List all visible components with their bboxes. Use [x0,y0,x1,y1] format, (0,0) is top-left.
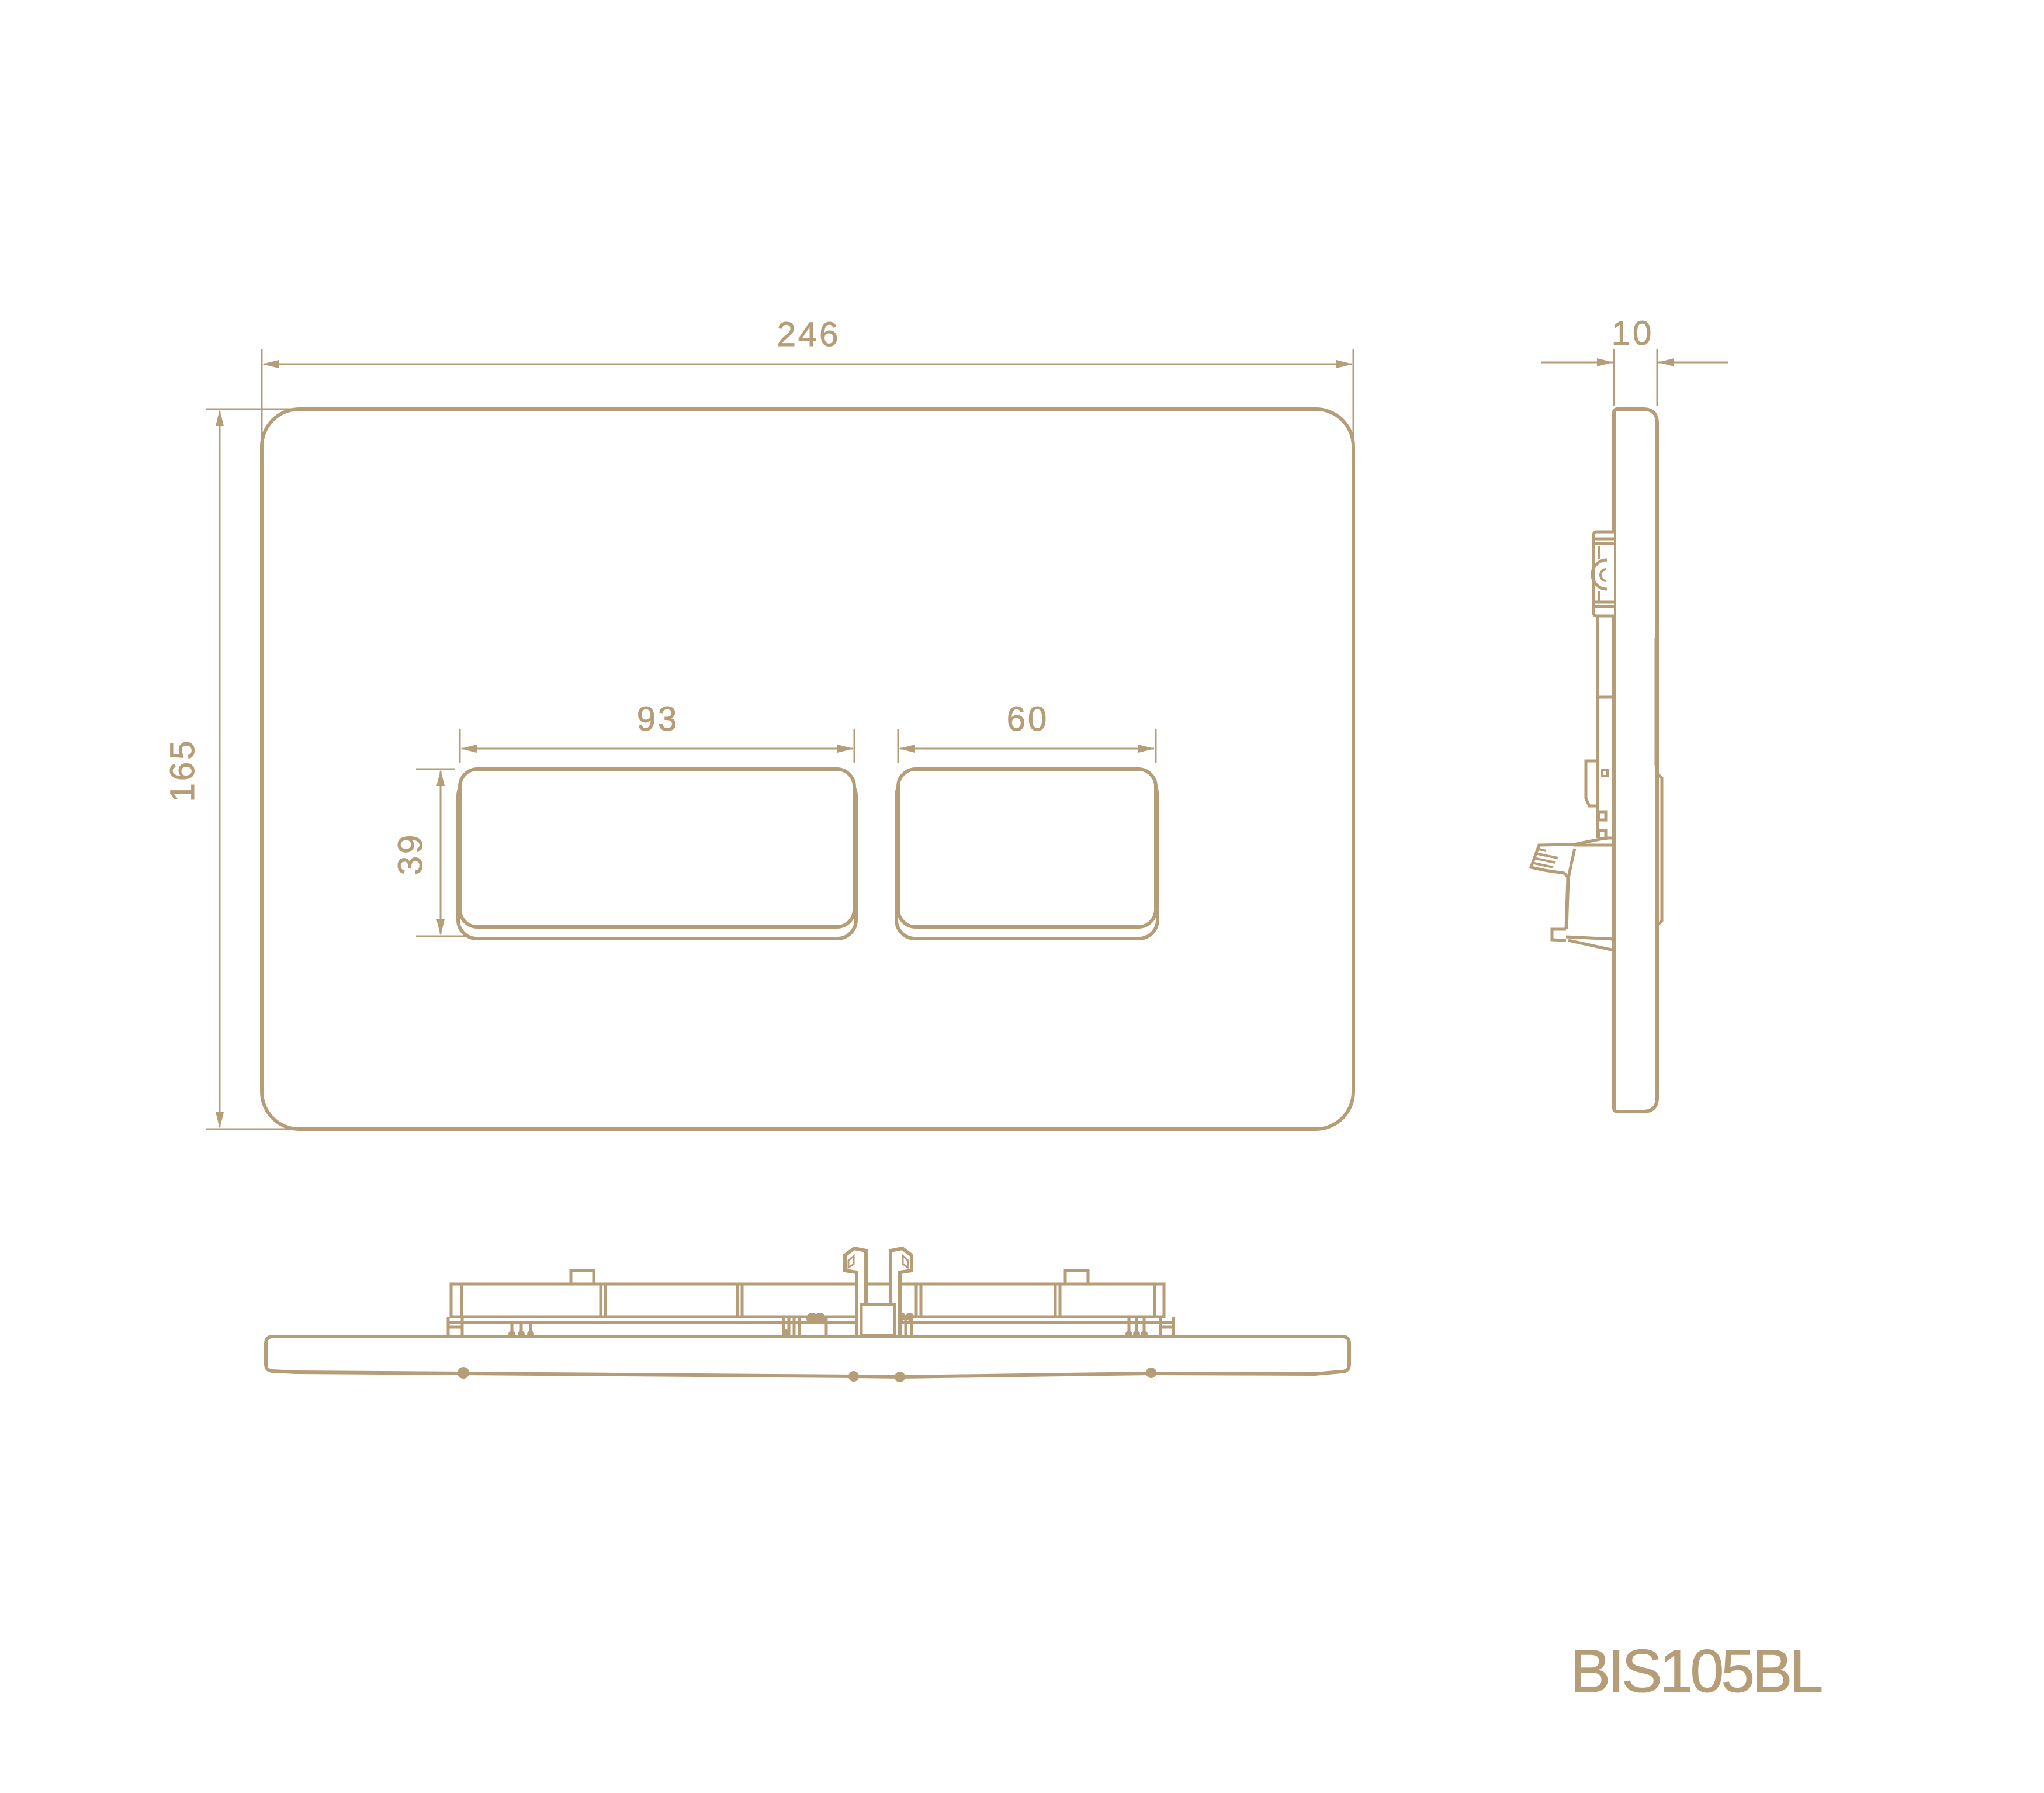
svg-text:10: 10 [1612,314,1654,352]
svg-text:93: 93 [637,700,680,738]
svg-text:39: 39 [392,833,429,875]
svg-text:BIS105BL: BIS105BL [1570,1638,1822,1705]
svg-text:165: 165 [164,739,202,802]
svg-text:246: 246 [777,316,841,354]
svg-text:60: 60 [1007,700,1049,738]
